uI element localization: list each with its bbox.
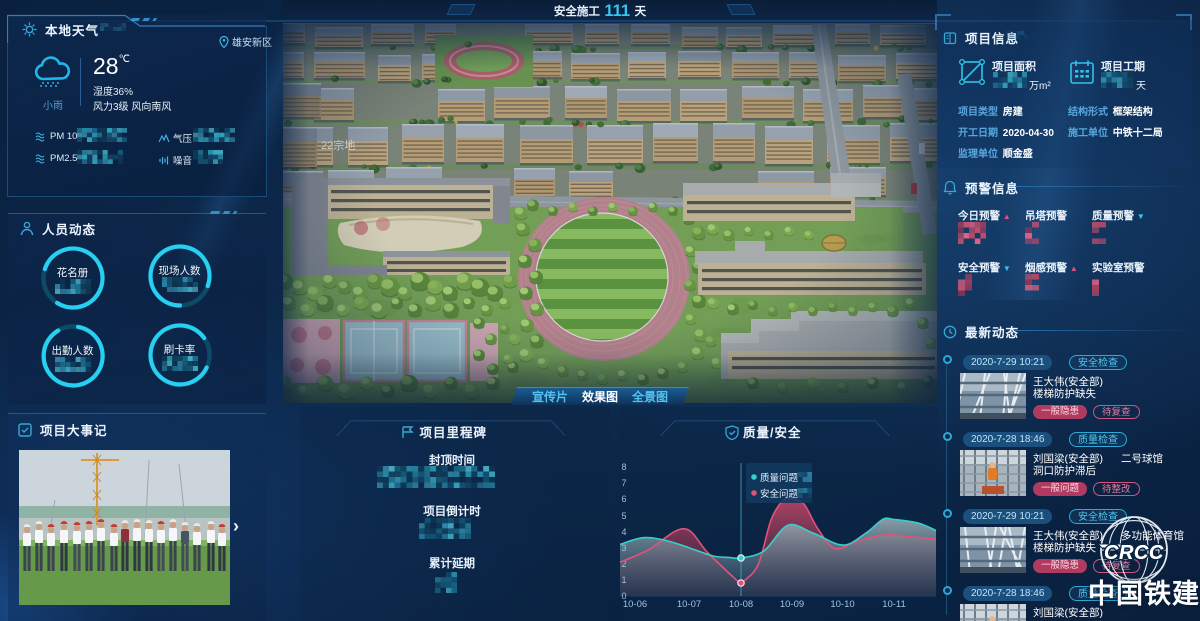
svg-text:10-06: 10-06 [623, 599, 647, 610]
svg-text:5: 5 [621, 511, 626, 521]
svg-text:10-10: 10-10 [830, 599, 854, 610]
svg-text:安全问题: 安全问题 [760, 488, 799, 500]
svg-text:4: 4 [621, 527, 626, 537]
svg-text:10-08: 10-08 [729, 599, 753, 610]
svg-text:1: 1 [621, 575, 626, 585]
svg-text:CRCC: CRCC [1104, 542, 1164, 564]
svg-text:10-11: 10-11 [882, 599, 906, 610]
svg-text:8: 8 [621, 462, 626, 472]
svg-text:10-09: 10-09 [780, 599, 804, 610]
svg-text:质量问题: 质量问题 [760, 472, 799, 484]
svg-text:10-07: 10-07 [677, 599, 701, 610]
svg-text:6: 6 [621, 494, 626, 504]
svg-text:7: 7 [621, 478, 626, 488]
